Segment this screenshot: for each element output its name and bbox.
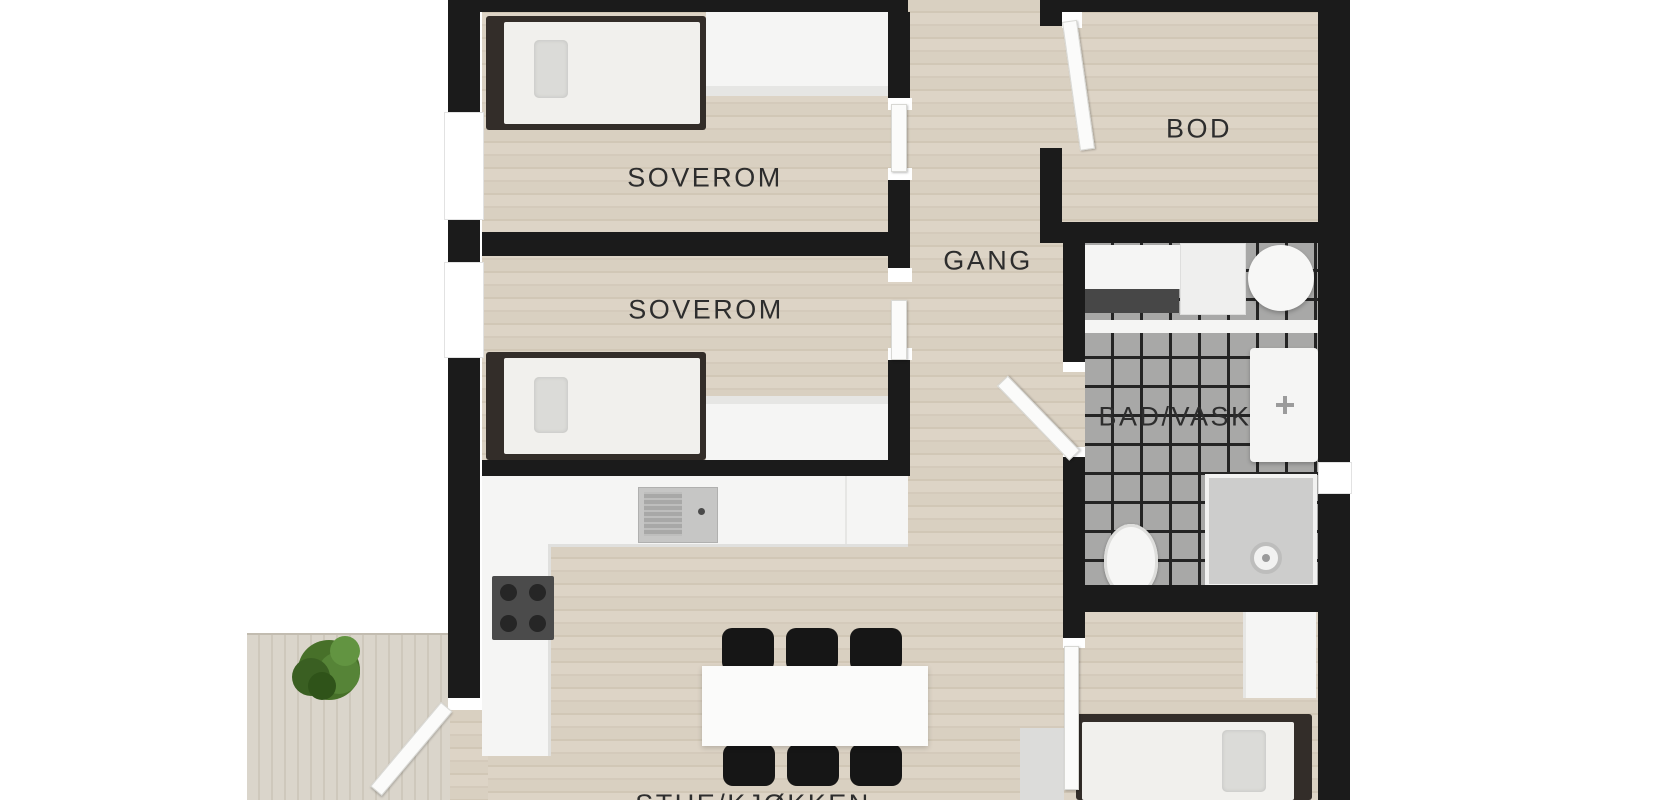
wall-bedroom2-kitchen bbox=[482, 460, 910, 476]
bed-pillow bbox=[534, 40, 568, 98]
washing-machine bbox=[1180, 243, 1246, 315]
bathroom-counter-shadow bbox=[1085, 289, 1179, 313]
plant-foliage bbox=[308, 672, 336, 700]
wall-bedroom-divider bbox=[482, 232, 910, 256]
room-label-gang: GANG bbox=[943, 246, 1033, 277]
dining-table bbox=[702, 666, 928, 746]
stove-burner bbox=[529, 615, 546, 632]
bath-door-jamb bbox=[1063, 362, 1085, 372]
wardrobe bbox=[706, 12, 888, 86]
vanity-faucet bbox=[1283, 396, 1287, 414]
plant-foliage bbox=[330, 636, 360, 666]
dining-chair bbox=[850, 744, 902, 786]
wall-bedroom1-gang-upper bbox=[888, 12, 910, 100]
wall-bedroom1-gang-lower bbox=[888, 178, 910, 232]
sideboard-front-edge bbox=[706, 396, 888, 404]
window-bedroom2 bbox=[444, 262, 484, 358]
wall-right-exterior bbox=[1318, 0, 1350, 800]
stove-burner bbox=[500, 584, 517, 601]
bedroom3-door-leaf bbox=[1064, 646, 1079, 790]
bedroom1-door-leaf bbox=[891, 104, 907, 172]
stove-burner bbox=[529, 584, 546, 601]
window-bedroom1 bbox=[444, 112, 484, 220]
dining-chair bbox=[787, 744, 839, 786]
bed-pillow bbox=[1222, 730, 1266, 792]
bed-pillow bbox=[534, 377, 568, 433]
shower-drain bbox=[1262, 554, 1270, 562]
wall-bath-gang-upper bbox=[1063, 243, 1085, 365]
wall-bod-gang-lower bbox=[1040, 148, 1062, 222]
dining-chair bbox=[723, 744, 775, 786]
plant bbox=[290, 632, 380, 712]
wall-bod-bath-divider bbox=[1040, 222, 1350, 243]
round-basin bbox=[1248, 245, 1314, 311]
dresser bbox=[1020, 728, 1064, 800]
room-label-stue-kjokken: STUE/KJØKKEN bbox=[635, 789, 871, 800]
wall-top-left bbox=[448, 0, 908, 12]
wall-bath-bottom bbox=[1063, 585, 1350, 612]
room-label-bod: BOD bbox=[1166, 114, 1232, 145]
fridge-seam bbox=[845, 476, 847, 544]
kitchen-sink-basin bbox=[644, 492, 682, 536]
bedroom2-door-leaf bbox=[891, 300, 907, 360]
window-bathroom bbox=[1318, 462, 1352, 494]
wall-bedroom3-door-stub bbox=[1063, 612, 1085, 640]
stove bbox=[492, 576, 554, 640]
wall-top-right bbox=[1040, 0, 1350, 12]
kitchen-faucet bbox=[698, 508, 705, 515]
bathroom-counter bbox=[1085, 245, 1181, 289]
wall-bod-gang-stub bbox=[1040, 12, 1062, 26]
room-label-soverom-1: SOVEROM bbox=[627, 163, 783, 194]
room-label-soverom-2: SOVEROM bbox=[628, 295, 784, 326]
wall-bedroom2-gang-lower bbox=[888, 358, 910, 476]
sideboard bbox=[706, 396, 888, 460]
wardrobe bbox=[1243, 612, 1316, 698]
stove-burner bbox=[500, 615, 517, 632]
room-label-bad-vask: BAD/VASK bbox=[1098, 402, 1251, 433]
terrace-door-jamb bbox=[448, 698, 482, 710]
bedroom2-door-jamb bbox=[888, 268, 912, 282]
bathroom-shelf bbox=[1085, 320, 1318, 333]
wardrobe-front-edge bbox=[706, 86, 888, 96]
floor-plan-canvas: SOVEROM SOVEROM GANG BOD BAD/VASK STUE/K… bbox=[0, 0, 1670, 800]
